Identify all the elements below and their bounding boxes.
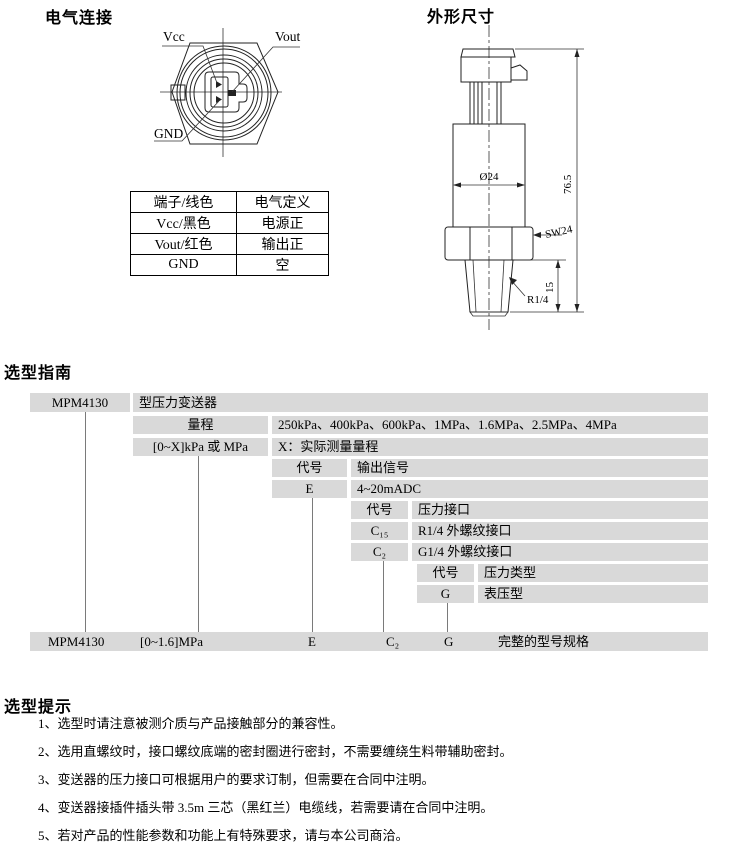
example-range: [0~1.6]MPa (140, 632, 203, 651)
connector-line (198, 456, 199, 632)
sel-type-code-header: 代号 (417, 564, 474, 582)
electrical-definition-table: 端子/线色 电气定义 Vcc/黑色 电源正 Vout/红色 输出正 GND 空 (130, 191, 329, 276)
gnd-label: GND (154, 126, 183, 141)
sel-range-label-cell: 量程 (133, 416, 268, 434)
cell-gnd: GND (131, 255, 237, 276)
example-port: C₂ (386, 632, 399, 651)
cell-vout: Vout/红色 (131, 234, 237, 255)
cell-vcc-def: 电源正 (237, 213, 329, 234)
connector-line (85, 412, 86, 632)
vout-pin (228, 90, 236, 96)
table-row: Vout/红色 输出正 (131, 234, 329, 255)
sensor-pins (470, 82, 501, 124)
sel-model-desc-cell: 型压力变送器 (133, 393, 708, 412)
selection-tips-heading: 选型提示 (4, 693, 72, 717)
selection-guide-heading: 选型指南 (4, 359, 72, 383)
sensor-connector-cap (461, 49, 527, 82)
example-output: E (308, 632, 316, 651)
table-row: Vcc/黑色 电源正 (131, 213, 329, 234)
sel-range-note-cell: X：实际测量量程 (272, 438, 708, 456)
connector-face-drawing: Vcc Vout GND (140, 22, 320, 172)
table-row: GND 空 (131, 255, 329, 276)
connector-line (383, 561, 384, 632)
col-header-terminal: 端子/线色 (131, 192, 237, 213)
sel-port-code1-cell: C₁₅ (351, 522, 408, 540)
sel-range-values-cell: 250kPa、400kPa、600kPa、1MPa、1.6MPa、2.5MPa、… (272, 416, 708, 434)
example-label: 完整的型号规格 (498, 632, 589, 651)
tip-item: 1、选型时请注意被测介质与产品接触部分的兼容性。 (38, 717, 513, 731)
wrench-label: SW24 (544, 223, 574, 241)
connector-line (447, 603, 448, 632)
electrical-connection-heading: 电气连接 (45, 4, 113, 28)
sel-port-val2-cell: G1/4 外螺纹接口 (412, 543, 708, 561)
dimension-dia: Ø24 (453, 171, 525, 188)
thread-label: R1/4 (527, 294, 549, 306)
dimension-height: 76.5 (510, 49, 584, 312)
sel-type-code-cell: G (417, 585, 474, 603)
sel-output-code-cell: E (272, 480, 347, 498)
outline-dimension-drawing: Ø24 SW24 R1/4 15 76.5 (440, 22, 600, 342)
dimension-wrench: SW24 (533, 223, 574, 241)
dimension-thread: R1/4 (509, 277, 549, 306)
sel-model-cell: MPM4130 (30, 393, 130, 412)
sel-port-code2-cell: C₂ (351, 543, 408, 561)
sel-output-code-header: 代号 (272, 459, 347, 477)
height-label: 76.5 (562, 174, 574, 194)
sel-example-row: MPM4130 [0~1.6]MPa E C₂ G 完整的型号规格 (30, 632, 708, 651)
col-header-definition: 电气定义 (237, 192, 329, 213)
connector-line (312, 498, 313, 632)
gnd-pin (216, 96, 222, 103)
example-type: G (444, 632, 453, 651)
sel-type-val-cell: 表压型 (478, 585, 708, 603)
sel-port-code-header: 代号 (351, 501, 408, 519)
cell-gnd-def: 空 (237, 255, 329, 276)
tip-item: 3、变送器的压力接口可根据用户的要求订制，但需要在合同中注明。 (38, 773, 513, 787)
connector-hex-body (171, 43, 278, 144)
thread-length-label: 15 (544, 282, 556, 294)
cell-vcc: Vcc/黑色 (131, 213, 237, 234)
datasheet-page: 电气连接 外形尺寸 Vcc Vout G (0, 0, 730, 855)
sel-output-value-cell: 4~20mADC (351, 480, 708, 498)
vcc-label: Vcc (163, 29, 185, 44)
cell-vout-def: 输出正 (237, 234, 329, 255)
sel-range-format-cell: [0~X]kPa 或 MPa (133, 438, 268, 456)
sel-port-val1-cell: R1/4 外螺纹接口 (412, 522, 708, 540)
sel-type-header: 压力类型 (478, 564, 708, 582)
dia-label: Ø24 (480, 171, 499, 183)
tip-item: 5、若对产品的性能参数和功能上有特殊要求，请与本公司商洽。 (38, 829, 513, 843)
tip-item: 2、选用直螺纹时，接口螺纹底端的密封圈进行密封，不需要缠绕生料带辅助密封。 (38, 745, 513, 759)
sel-output-header: 输出信号 (351, 459, 708, 477)
sel-port-header: 压力接口 (412, 501, 708, 519)
selection-tips-list: 1、选型时请注意被测介质与产品接触部分的兼容性。 2、选用直螺纹时，接口螺纹底端… (38, 717, 513, 855)
example-model: MPM4130 (48, 632, 104, 651)
tip-item: 4、变送器接插件插头带 3.5m 三芯（黑红兰）电缆线，若需要请在合同中注明。 (38, 801, 513, 815)
vout-label: Vout (275, 29, 301, 44)
